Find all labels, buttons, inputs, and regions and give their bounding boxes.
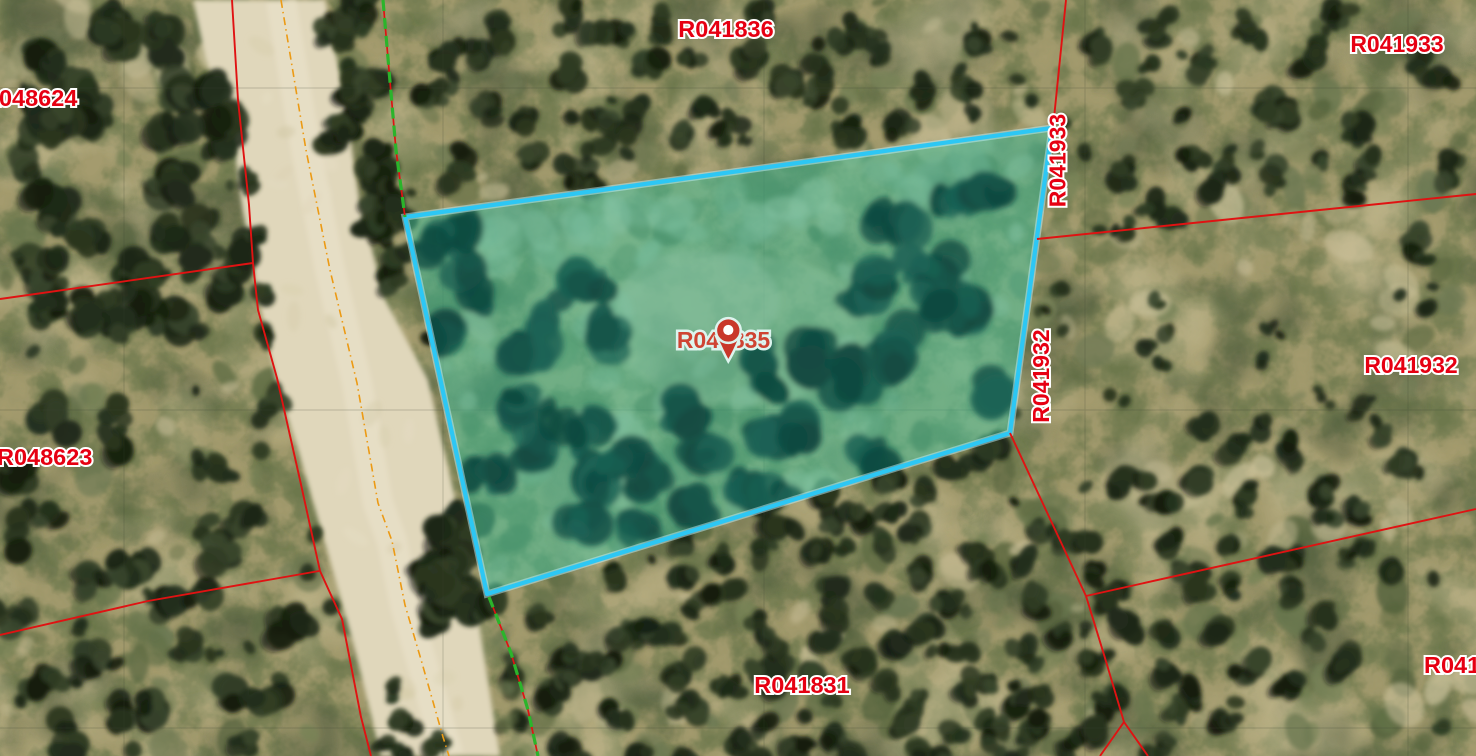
svg-text:R041933: R041933 xyxy=(1045,114,1071,207)
svg-text:R041933: R041933 xyxy=(1350,31,1443,57)
svg-text:R048624: R048624 xyxy=(0,85,77,111)
svg-text:R041830: R041830 xyxy=(1424,652,1476,678)
svg-text:R041932: R041932 xyxy=(1028,329,1054,422)
svg-text:R048623: R048623 xyxy=(0,444,92,470)
svg-text:R041831: R041831 xyxy=(754,672,849,698)
svg-text:R041836: R041836 xyxy=(678,16,773,42)
svg-text:R041932: R041932 xyxy=(1364,352,1457,378)
